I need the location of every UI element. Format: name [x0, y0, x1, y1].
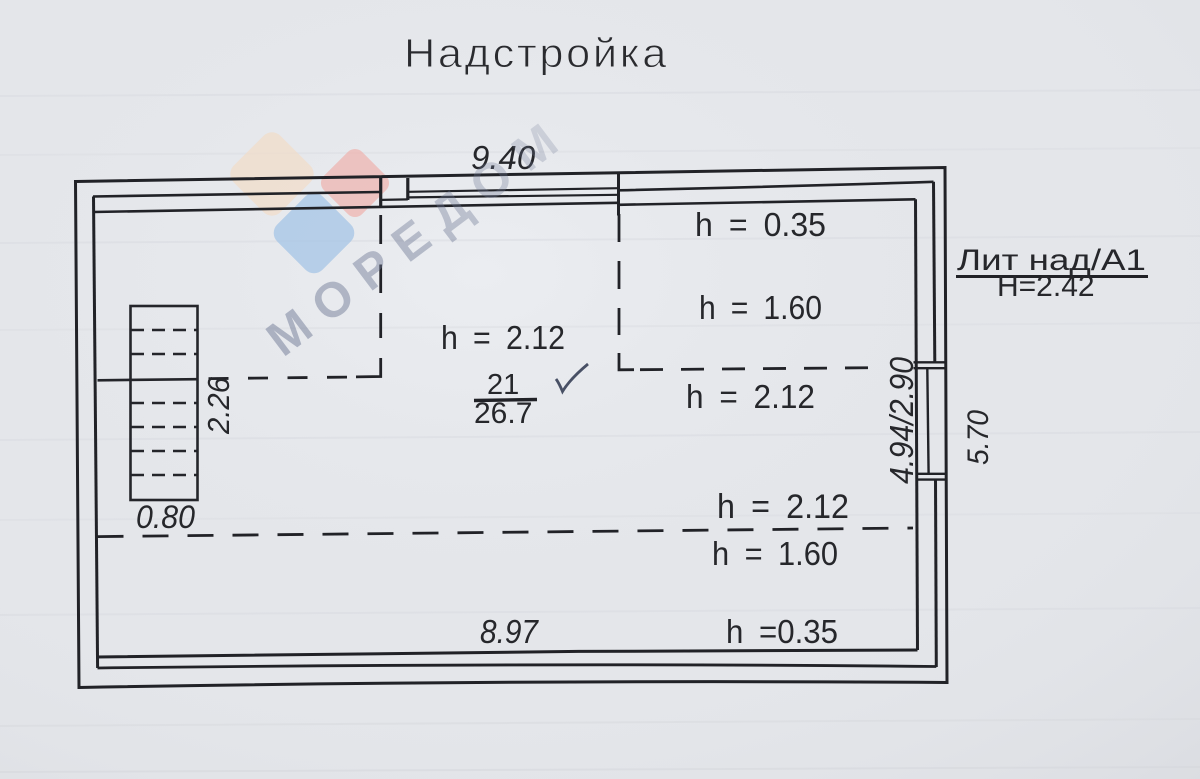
svg-text:h =0.35: h =0.35 [726, 613, 838, 650]
svg-text:h = 1.60: h = 1.60 [699, 289, 822, 326]
svg-text:h = 2.12: h = 2.12 [686, 378, 815, 415]
svg-text:0.80: 0.80 [136, 499, 195, 535]
svg-text:h = 0.35: h = 0.35 [695, 206, 826, 243]
svg-text:2.26: 2.26 [201, 376, 236, 435]
svg-text:h = 1.60: h = 1.60 [712, 535, 838, 572]
svg-text:Надстройка: Надстройка [404, 30, 669, 76]
svg-text:4.94/2.90: 4.94/2.90 [883, 356, 920, 484]
svg-text:h = 2.12: h = 2.12 [441, 319, 565, 356]
svg-text:h = 2.12: h = 2.12 [717, 488, 849, 526]
svg-text:Н=2.42: Н=2.42 [997, 270, 1095, 303]
svg-text:26.7: 26.7 [474, 397, 532, 430]
svg-text:8.97: 8.97 [480, 613, 539, 650]
svg-text:5.70: 5.70 [962, 410, 995, 465]
